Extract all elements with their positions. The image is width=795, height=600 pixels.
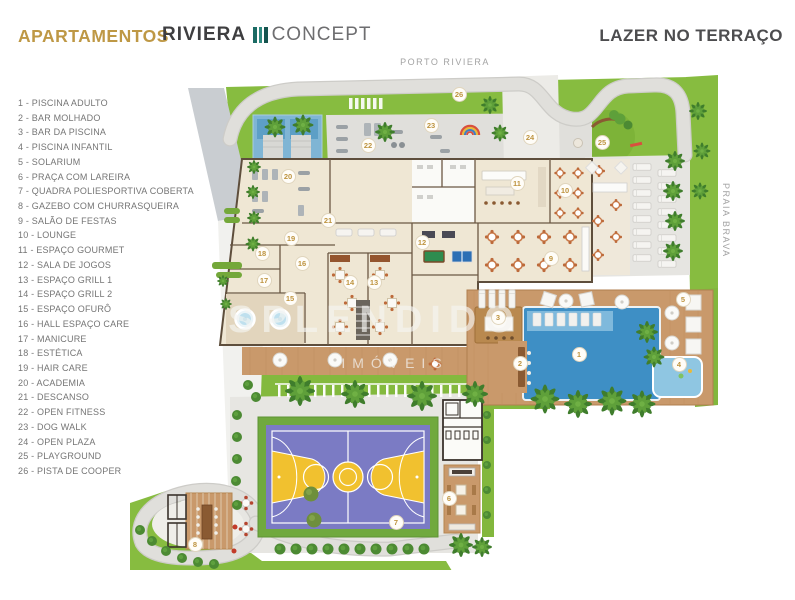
- brand-name: RIVIERA: [162, 24, 246, 46]
- service-block: [443, 400, 482, 460]
- plan-marker-19: 19: [284, 231, 299, 246]
- terrace-deck: [242, 347, 478, 375]
- plan-marker-4: 4: [672, 357, 687, 372]
- plan-marker-11: 11: [510, 176, 525, 191]
- plan-marker-21: 21: [321, 213, 336, 228]
- stairs: [356, 300, 370, 340]
- plan-marker-10: 10: [558, 183, 573, 198]
- plan-marker-13: 13: [367, 275, 382, 290]
- plan-marker-8: 8: [188, 537, 203, 552]
- sports-court: [258, 417, 438, 537]
- plan-marker-26: 26: [452, 87, 467, 102]
- plan-marker-15: 15: [283, 291, 298, 306]
- plan-marker-17: 17: [257, 273, 272, 288]
- site-plan-drawing: [130, 75, 720, 570]
- site-plan: SPLENDIDO IMÓVEIS 1234567891011121314151…: [130, 75, 720, 570]
- pool-complex: [467, 290, 713, 405]
- plan-marker-24: 24: [523, 130, 538, 145]
- buffet-table: [582, 227, 589, 271]
- plan-marker-25: 25: [595, 135, 610, 150]
- plan-marker-16: 16: [295, 256, 310, 271]
- brand-suffix: CONCEPT: [272, 24, 372, 46]
- praia-brava-label: PRAIA BRAVA: [721, 183, 731, 258]
- plan-marker-5: 5: [676, 292, 691, 307]
- plan-marker-2: 2: [513, 356, 528, 371]
- page: APARTAMENTOS RIVIERA CONCEPT LAZER NO TE…: [0, 0, 795, 600]
- plan-marker-22: 22: [361, 138, 376, 153]
- riviera-concept-logo: RIVIERA CONCEPT: [162, 24, 371, 46]
- page-title: LAZER NO TERRAÇO: [599, 26, 783, 46]
- plan-marker-7: 7: [389, 515, 404, 530]
- rest-loungers: [336, 229, 396, 236]
- porto-riviera-label: PORTO RIVIERA: [385, 57, 505, 67]
- plan-marker-12: 12: [415, 235, 430, 250]
- plan-marker-14: 14: [343, 275, 358, 290]
- plan-marker-23: 23: [424, 118, 439, 133]
- apartamentos-title: APARTAMENTOS: [18, 26, 169, 47]
- plan-marker-6: 6: [442, 491, 457, 506]
- plan-marker-18: 18: [255, 246, 270, 261]
- logo-bars-icon: [253, 27, 268, 43]
- plan-marker-1: 1: [572, 347, 587, 362]
- plan-marker-3: 3: [491, 310, 506, 325]
- grill-counter-1: [370, 255, 390, 262]
- plan-marker-9: 9: [544, 251, 559, 266]
- plan-marker-20: 20: [281, 169, 296, 184]
- grill-counter-2: [330, 255, 350, 262]
